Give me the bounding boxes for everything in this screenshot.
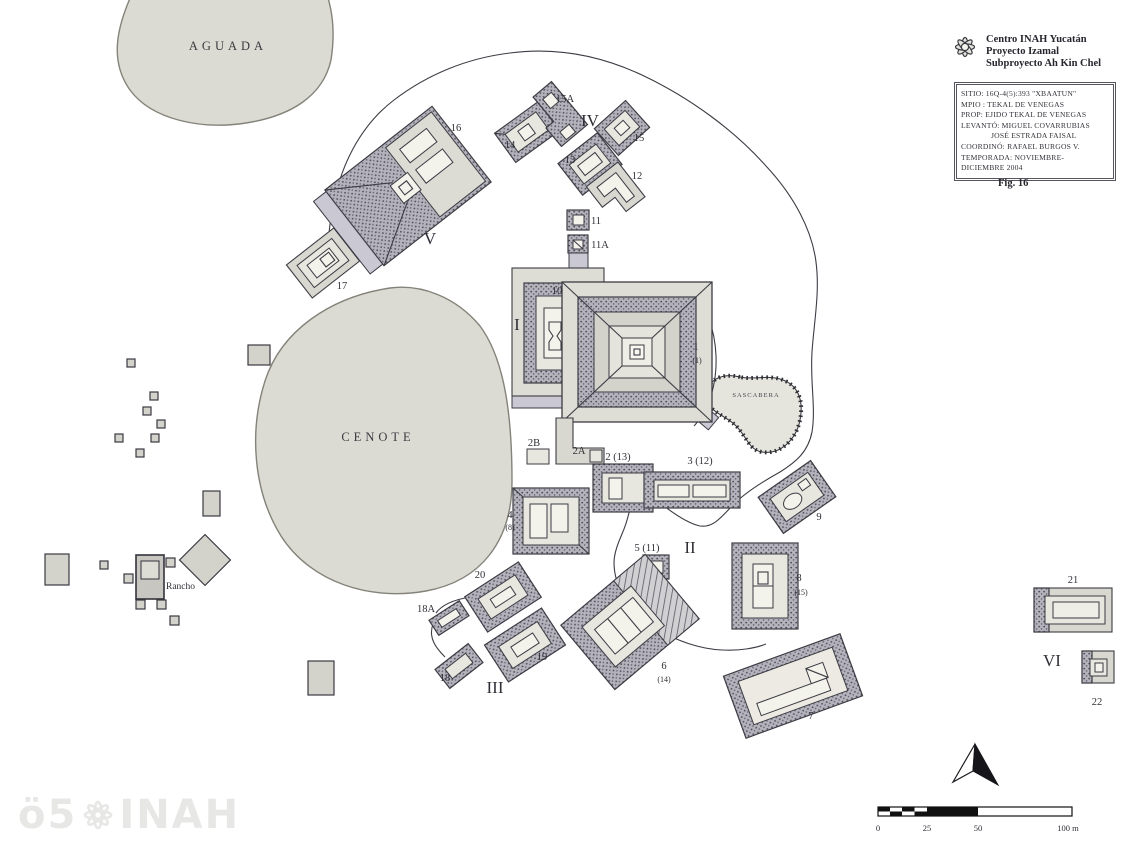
structure-6 [561,554,699,689]
label-2: 2 (13) [605,452,631,463]
watermark-inah: INAH [119,792,240,838]
site-info-box: SITIO: 16Q-4(5):393 "XBAATUN" MPIO : TEK… [956,84,1114,179]
label-16: 16 [451,123,462,134]
aguada-label: AGUADA [189,39,267,53]
structure-11 [567,210,589,230]
watermark-rosette-icon [81,798,115,832]
label-10: 10 [552,286,563,297]
scale-bar: 0 25 50 100 m [876,807,1079,833]
label-1: 1 [693,342,698,353]
label-11: 11 [591,216,601,227]
label-22: 22 [1092,697,1103,708]
label-2B: 2B [528,438,540,449]
structure-22 [1082,651,1114,683]
scale-tick-50: 50 [974,823,983,833]
label-8-sub: (15) [794,588,808,597]
structure-9 [758,461,836,534]
label-8: 8 [796,573,801,584]
cenote-label: CENOTE [341,430,414,444]
org-line-3: Subproyecto Ah Kin Chel [986,58,1101,70]
label-group-II: II [684,538,696,557]
label-group-III: III [487,678,504,697]
scale-tick-100: 100 m [1057,823,1079,833]
info-levanto-2: JOSÉ ESTRADA FAISAL [961,131,1109,142]
inah-rosette-icon [952,34,978,60]
label-6-sub: (14) [657,675,671,684]
label-11A: 11A [591,240,609,251]
watermark-65: ö5 [18,792,77,838]
info-mpio: MPIO : TEKAL DE VENEGAS [961,100,1109,111]
label-3: 3 (12) [687,456,713,467]
inah-watermark: ö5 INAH [18,792,240,838]
sascabera-label: SASCABERA [732,392,779,399]
rancho-label: Rancho [166,582,195,592]
label-21: 21 [1068,575,1079,586]
label-14: 14 [505,140,516,151]
structure-21 [1034,588,1112,632]
structure-11A [568,235,588,253]
label-group-I: I [514,315,520,334]
header-block: Centro INAH Yucatán Proyecto Izamal Subp… [952,34,1132,70]
label-18A: 18A [417,604,436,615]
structure-2B [527,449,549,464]
north-arrow [953,744,998,785]
label-18: 18 [440,673,451,684]
label-12: 12 [632,171,643,182]
label-7: 7 [808,711,813,722]
info-coordino: COORDINÓ: RAFAEL BURGOS V. [961,142,1109,153]
label-13: 13 [565,155,576,166]
info-sitio: SITIO: 16Q-4(5):393 "XBAATUN" [961,89,1109,100]
info-prop: PROP: EJIDO TEKAL DE VENEGAS [961,110,1109,121]
info-temporada: TEMPORADA: NOVIEMBRE- [961,153,1109,164]
label-17: 17 [337,281,348,292]
site-map-page: .ink{stroke:#3c3c44;fill:none;stroke-wid… [0,0,1140,853]
label-19: 19 [537,652,548,663]
structure-2A-endcap [590,450,602,462]
label-group-V: V [424,229,437,248]
structure-8 [732,543,798,629]
label-group-VI: VI [1043,651,1061,670]
label-6: 6 [661,661,666,672]
label-15: 15 [634,133,645,144]
org-line-1: Centro INAH Yucatán [986,34,1101,46]
structure-4 [513,488,589,554]
structure-3 [644,472,740,508]
label-2A: 2A [573,446,586,457]
figure-label: Fig. 16 [998,178,1028,189]
info-levanto: LEVANTÓ: MIGUEL COVARRUBIAS [961,121,1109,132]
label-4: 4 [507,510,513,521]
label-20: 20 [475,570,486,581]
aguada-pond [117,0,333,125]
sascabera: SASCABERA [706,376,801,453]
info-temporada-2: DICIEMBRE 2004 [961,163,1109,174]
label-group-IV: IV [581,111,600,130]
scale-tick-25: 25 [923,823,932,833]
org-line-2: Proyecto Izamal [986,46,1101,58]
label-4-sub: (8) [505,523,515,532]
label-5: 5 (11) [635,543,660,554]
label-15A: 15A [556,94,575,105]
label-9: 9 [816,512,821,523]
scale-tick-0: 0 [876,823,880,833]
label-1-sub: (1) [692,356,702,365]
